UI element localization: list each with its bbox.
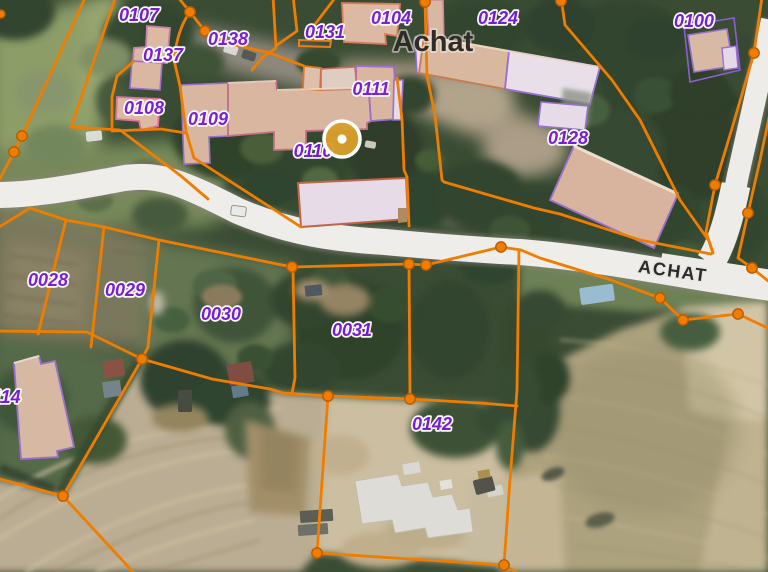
svg-text:0124: 0124 <box>478 8 518 28</box>
svg-text:0111: 0111 <box>352 79 389 99</box>
svg-text:0142: 0142 <box>412 414 452 434</box>
svg-text:0029: 0029 <box>105 280 145 300</box>
svg-text:0138: 0138 <box>208 29 248 49</box>
svg-text:0137: 0137 <box>143 45 184 65</box>
svg-text:Achat: Achat <box>393 26 474 58</box>
svg-text:0100: 0100 <box>674 11 714 31</box>
svg-text:114: 114 <box>0 387 21 407</box>
svg-text:0131: 0131 <box>305 22 345 42</box>
svg-text:0031: 0031 <box>332 320 372 340</box>
svg-text:0109: 0109 <box>188 109 228 129</box>
svg-text:0104: 0104 <box>371 8 411 28</box>
svg-text:0108: 0108 <box>124 98 164 118</box>
svg-text:0128: 0128 <box>548 128 588 148</box>
svg-text:0028: 0028 <box>28 270 68 290</box>
svg-text:0107: 0107 <box>119 5 160 25</box>
svg-text:0030: 0030 <box>201 304 241 324</box>
